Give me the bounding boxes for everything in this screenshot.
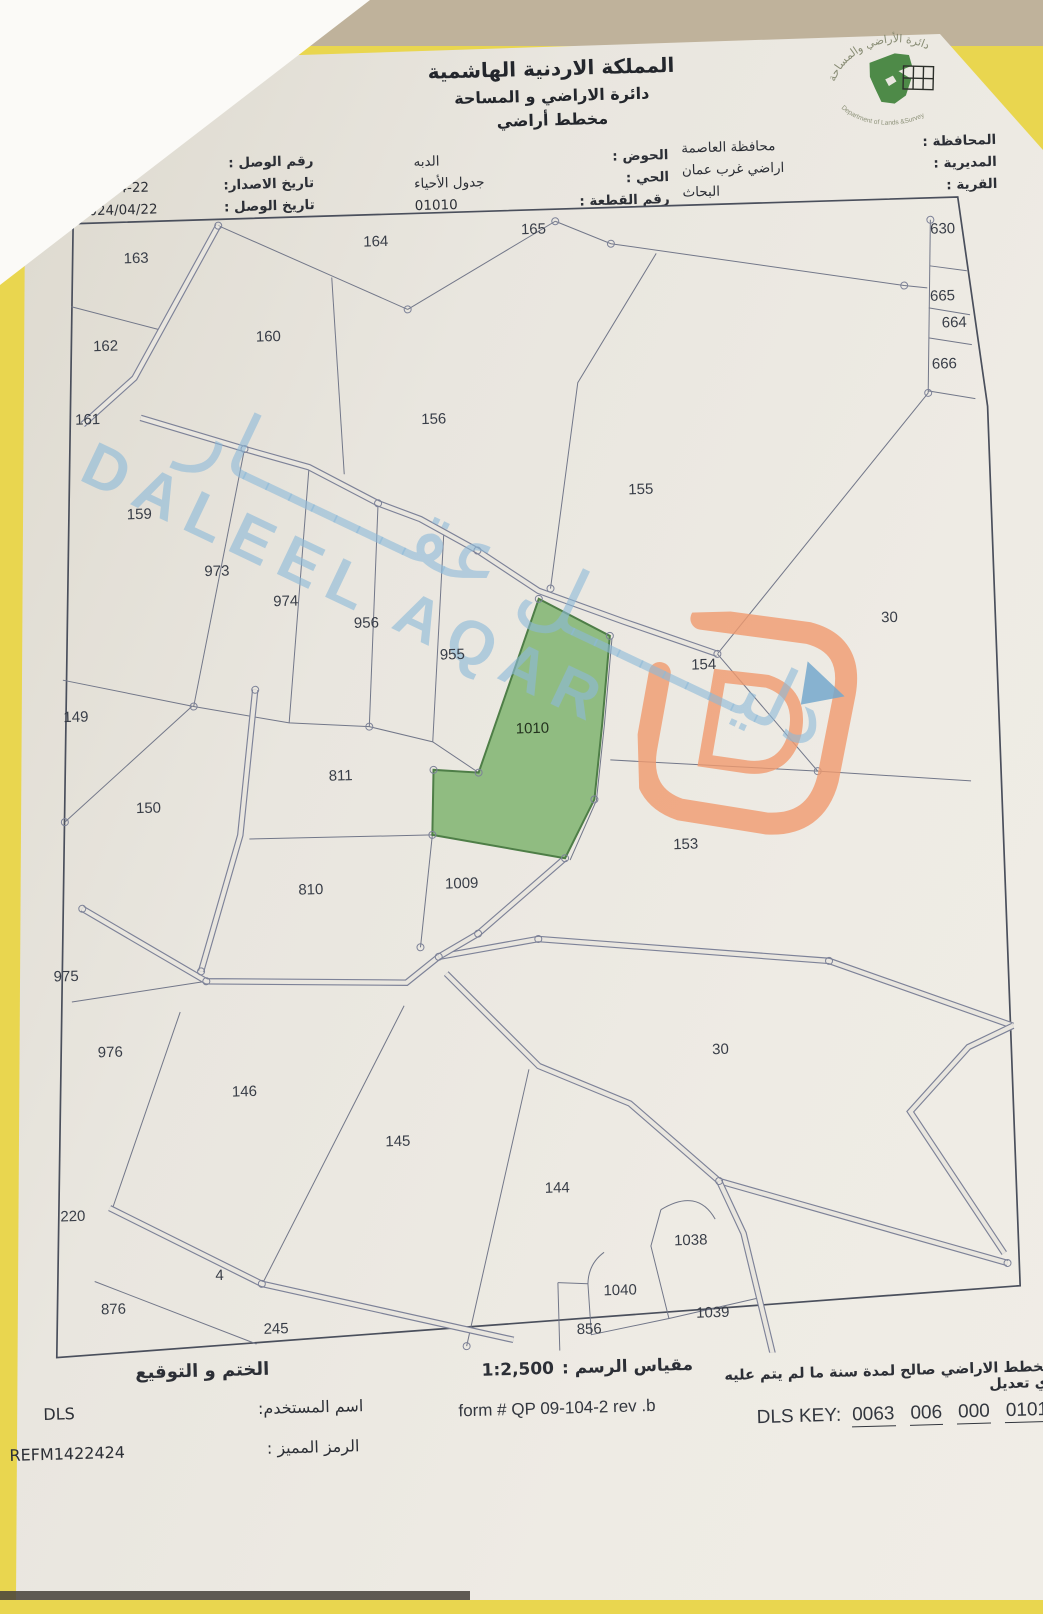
parcel-label-155: 155 [619,480,663,498]
parcel-label-154: 154 [681,656,725,674]
dls-key-label: DLS KEY: [756,1405,841,1429]
parcel-label-1010: 1010 [510,719,554,737]
parcel-label-162: 162 [83,337,127,355]
daleel-aqar-logo-icon [634,608,865,849]
dls-emblem-logo: دائرة الأراضي والمساحة Department of Lan… [800,15,983,149]
field-value: الدبه [413,153,439,170]
parcel-label-956: 956 [344,614,388,632]
username-label: اسم المستخدم: [258,1396,364,1418]
field-label: المحافظة : [922,132,996,150]
document-header: المملكة الاردنية الهاشمية دائرة الاراضي … [391,52,713,134]
dls-key-group: 000 [957,1401,991,1425]
username-row: اسم المستخدم: DLS [43,1396,363,1424]
jordan-map-icon [868,52,916,106]
parcel-label-4: 4 [197,1266,241,1284]
parcel-label-146: 146 [222,1083,266,1101]
document-content: المملكة الاردنية الهاشمية دائرة الاراضي … [0,0,1043,1614]
field-label: رقم الوصل : [228,153,314,171]
parcel-label-153: 153 [663,835,707,853]
field-value: جدول الأحياء [414,174,485,192]
parcel-label-856: 856 [567,1320,611,1338]
parcel-label-245: 245 [254,1320,298,1338]
code-value: REFM1422424 [9,1443,125,1465]
parcel-label-810: 810 [289,881,333,899]
parcel-label-1009: 1009 [439,875,483,893]
field-value: اراضي غرب عمان [682,160,785,179]
field-label: الحوض : [612,147,669,165]
parcel-label-1038: 1038 [669,1231,713,1249]
parcel-label-811: 811 [318,767,362,785]
form-number: form # QP 09-104-2 rev .b [458,1396,656,1421]
parcel-label-165: 165 [511,220,555,238]
kingdom-title: المملكة الاردنية الهاشمية [391,52,712,85]
parcel-label-161: 161 [65,411,109,429]
paper-edge-shadow [0,1591,470,1600]
parcel-label-973: 973 [195,562,239,580]
code-row: الرمز المميز : REFM1422424 [9,1436,359,1465]
parcel-label-144: 144 [535,1179,579,1197]
cadastral-map-drawing [15,186,1037,1373]
parcel-label-955: 955 [430,646,474,664]
parcel-label-1039: 1039 [691,1304,735,1322]
field-value: محافظة العاصمة [681,138,776,157]
field-label: تاريخ الاصدار: [223,175,314,194]
parcel-label-30: 30 [698,1040,742,1058]
stamp-signature-label: الختم و التوقيع [135,1359,270,1384]
dls-key-group: 0063 [851,1403,896,1427]
scale-label: مقياس الرسم : [562,1355,694,1379]
parcel-label-150: 150 [126,799,170,817]
department-title: دائرة الاراضي و المساحة [392,82,712,110]
parcel-label-665: 665 [920,287,964,305]
document-type: مخطط أراضي [392,106,712,134]
scale-value: 1:2,500 [481,1359,554,1381]
username-value: DLS [43,1404,75,1424]
dls-key-group: 01010 [1005,1399,1043,1424]
parcel-label-666: 666 [922,355,966,373]
scanned-land-plan-photo: { "header": { "kingdom": "المملكة الاردن… [0,0,1043,1600]
parcel-label-156: 156 [412,410,456,428]
parcel-label-160: 160 [246,328,290,346]
validity-note: مخطط الاراضي صالح لمدة سنة ما لم يتم علي… [702,1359,1043,1401]
parcel-label-664: 664 [932,314,976,332]
parcel-label-220: 220 [51,1207,95,1225]
cadastral-map: 1631641656306656646661621601611561551599… [15,186,1037,1373]
field-label: المديرية : [933,154,997,172]
parcel-label-149: 149 [54,708,98,726]
parcel-label-145: 145 [376,1132,420,1150]
parcel-label-975: 975 [44,968,88,986]
parcel-label-974: 974 [264,592,308,610]
parcel-label-164: 164 [354,233,398,251]
parcel-label-1040: 1040 [598,1281,642,1299]
dls-key-row: DLS KEY: 006300600001010 [756,1399,1043,1430]
parcel-label-876: 876 [91,1300,135,1318]
parcel-label-976: 976 [88,1043,132,1061]
parcel-label-30: 30 [867,608,911,626]
dls-key-value: 006300600001010 [851,1399,1043,1428]
parcel-label-630: 630 [920,220,964,238]
field-label: الحي : [626,169,670,186]
code-label: الرمز المميز : [267,1436,360,1458]
parcel-label-159: 159 [117,505,161,523]
dls-key-group: 006 [909,1402,943,1426]
parcel-label-163: 163 [114,249,158,267]
